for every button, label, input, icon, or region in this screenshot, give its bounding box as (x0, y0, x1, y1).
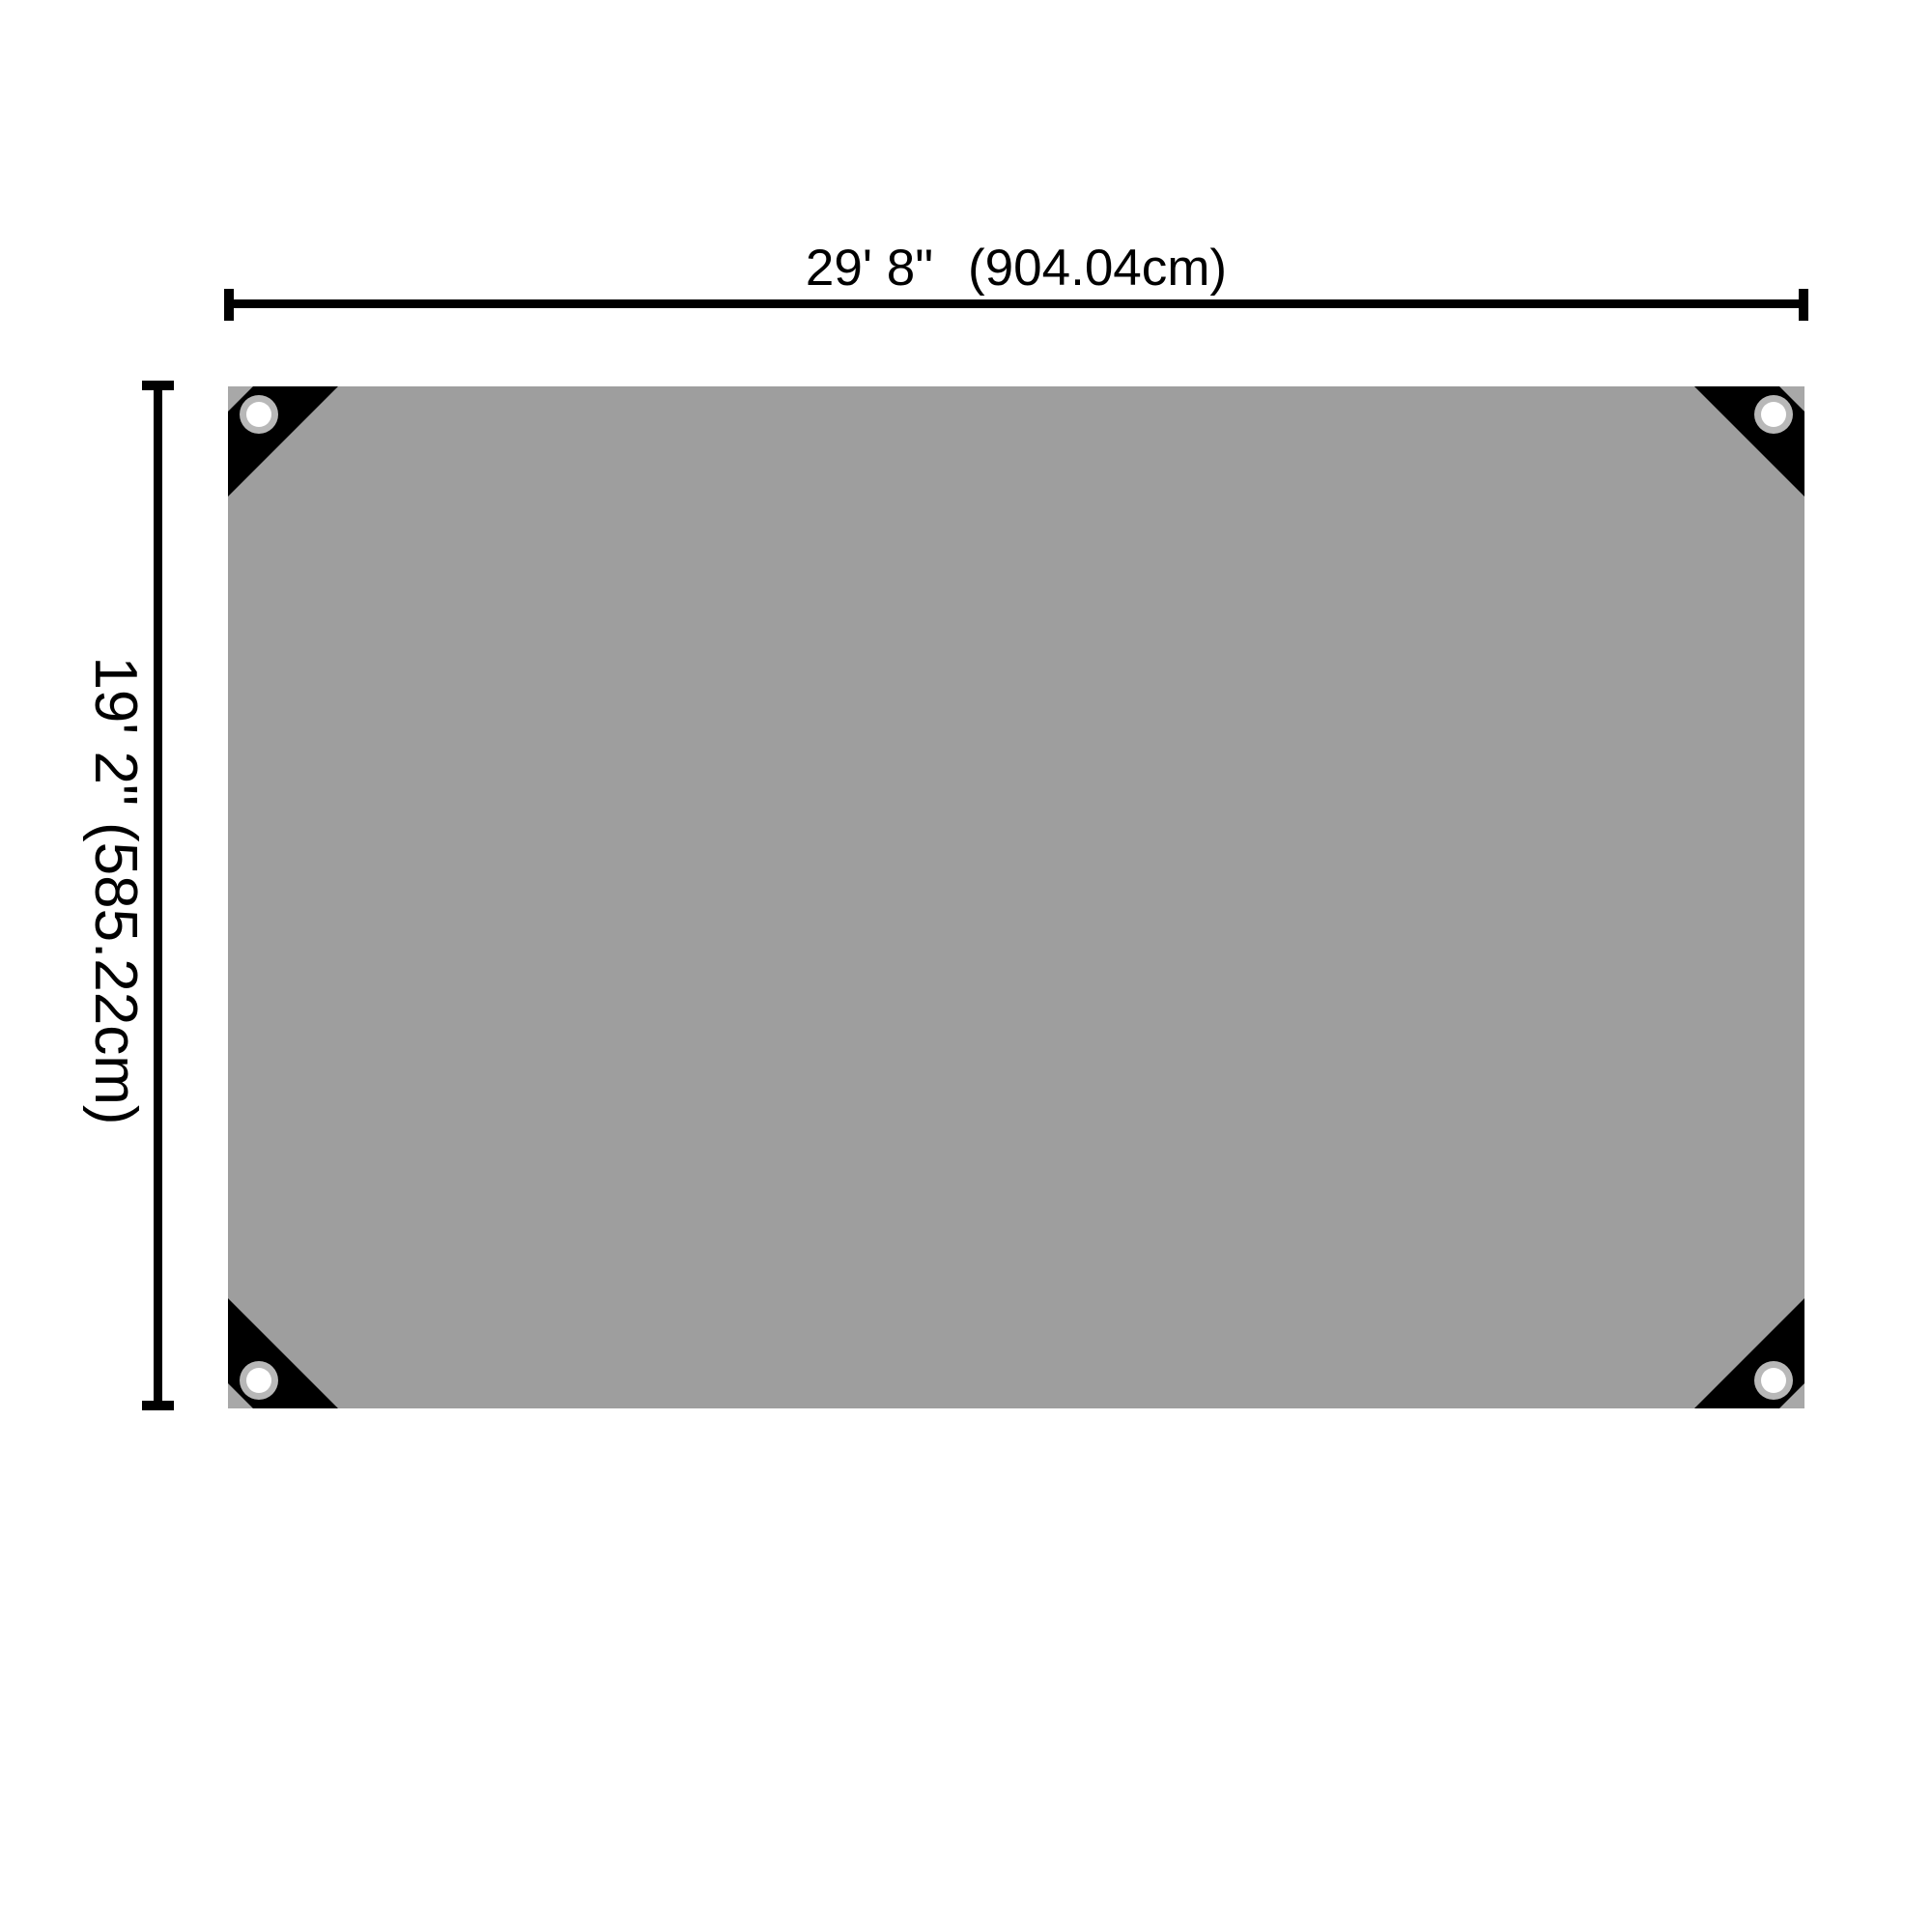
height-dimension-cap-top (142, 381, 174, 390)
width-dimension-label: 29' 8"(904.04cm) (228, 242, 1804, 294)
height-dimension-bar (154, 384, 162, 1406)
height-dimension-cap-bottom (142, 1401, 174, 1410)
height-metric-value: (585.22cm) (82, 822, 149, 1125)
grommet-hole-top-right-icon (1761, 402, 1786, 427)
width-imperial-value: 29' 8" (806, 240, 933, 297)
height-imperial-value: 19' 2" (82, 656, 149, 806)
width-metric-value: (904.04cm) (968, 240, 1227, 297)
tarp-body (228, 386, 1804, 1408)
grommet-hole-top-left-icon (246, 402, 271, 427)
grommet-hole-bottom-left-icon (246, 1368, 271, 1393)
height-dimension-label-text: 19' 2"(585.22cm) (85, 656, 145, 1124)
width-dimension-bar (228, 299, 1804, 308)
grommet-hole-bottom-right-icon (1761, 1368, 1786, 1393)
tarp-dimension-diagram: 29' 8"(904.04cm) 19' 2"(585.22cm) (0, 0, 1932, 1932)
